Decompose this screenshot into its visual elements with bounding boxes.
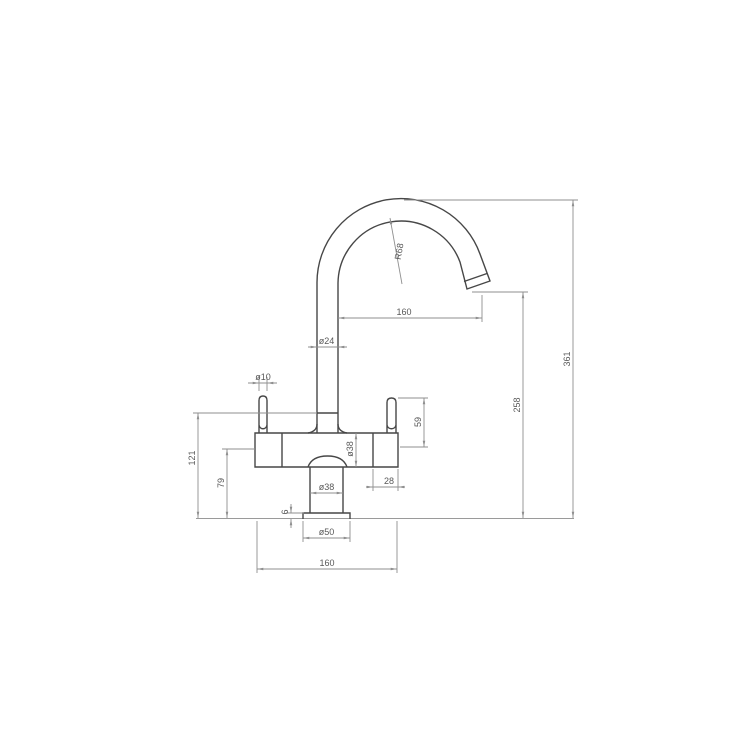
dim-overall-height: 361 <box>404 200 578 518</box>
dim-label: ø38 <box>319 482 335 492</box>
dim-stem-diameter: ø38 <box>310 482 343 493</box>
dim-label: ø24 <box>319 336 335 346</box>
dim-riser-joint-height: 121 <box>187 413 317 518</box>
body-dome <box>308 456 347 467</box>
dim-lever-diameter: ø10 <box>248 372 277 391</box>
dim-outlet-height: 258 <box>472 292 528 518</box>
dim-base-plate-diameter: ø50 <box>303 521 350 542</box>
dim-label: 59 <box>413 417 423 427</box>
dim-handle-height: 59 <box>398 398 428 447</box>
dim-label: 160 <box>396 307 411 317</box>
body-section-lines <box>282 433 373 467</box>
dim-label: 121 <box>187 450 197 465</box>
dim-label: 361 <box>562 351 572 366</box>
dim-label: 28 <box>384 476 394 486</box>
dim-label: 160 <box>319 558 334 568</box>
dim-spout-reach: 160 <box>338 295 482 322</box>
riser-flare <box>308 424 347 433</box>
dim-label: ø50 <box>319 527 335 537</box>
drawing-canvas: ø10 ø24 160 R68 361 258 <box>0 0 750 750</box>
dimension-annotations: ø10 ø24 160 R68 361 258 <box>187 200 578 573</box>
dim-handle-body-width: 28 <box>366 469 405 491</box>
tap-outline <box>255 199 490 519</box>
dim-label: ø10 <box>255 372 271 382</box>
dim-body-diameter: ø38 <box>345 433 356 467</box>
left-handle-lever <box>259 396 267 433</box>
aerator-band <box>464 274 487 282</box>
valve-body <box>255 433 398 467</box>
dim-label: 79 <box>216 478 226 488</box>
dim-label: R68 <box>393 242 406 260</box>
dim-riser-diameter: ø24 <box>308 336 347 347</box>
dim-spout-radius: R68 <box>390 218 405 284</box>
dim-label: 258 <box>512 397 522 412</box>
dim-body-centre-height: 79 <box>216 449 255 518</box>
right-handle-lever <box>387 398 396 433</box>
tap-technical-drawing: ø10 ø24 160 R68 361 258 <box>0 0 750 750</box>
dim-label: ø38 <box>345 441 355 457</box>
dim-base-plate-thickness: 6 <box>280 504 304 528</box>
dim-label: 6 <box>280 509 290 514</box>
